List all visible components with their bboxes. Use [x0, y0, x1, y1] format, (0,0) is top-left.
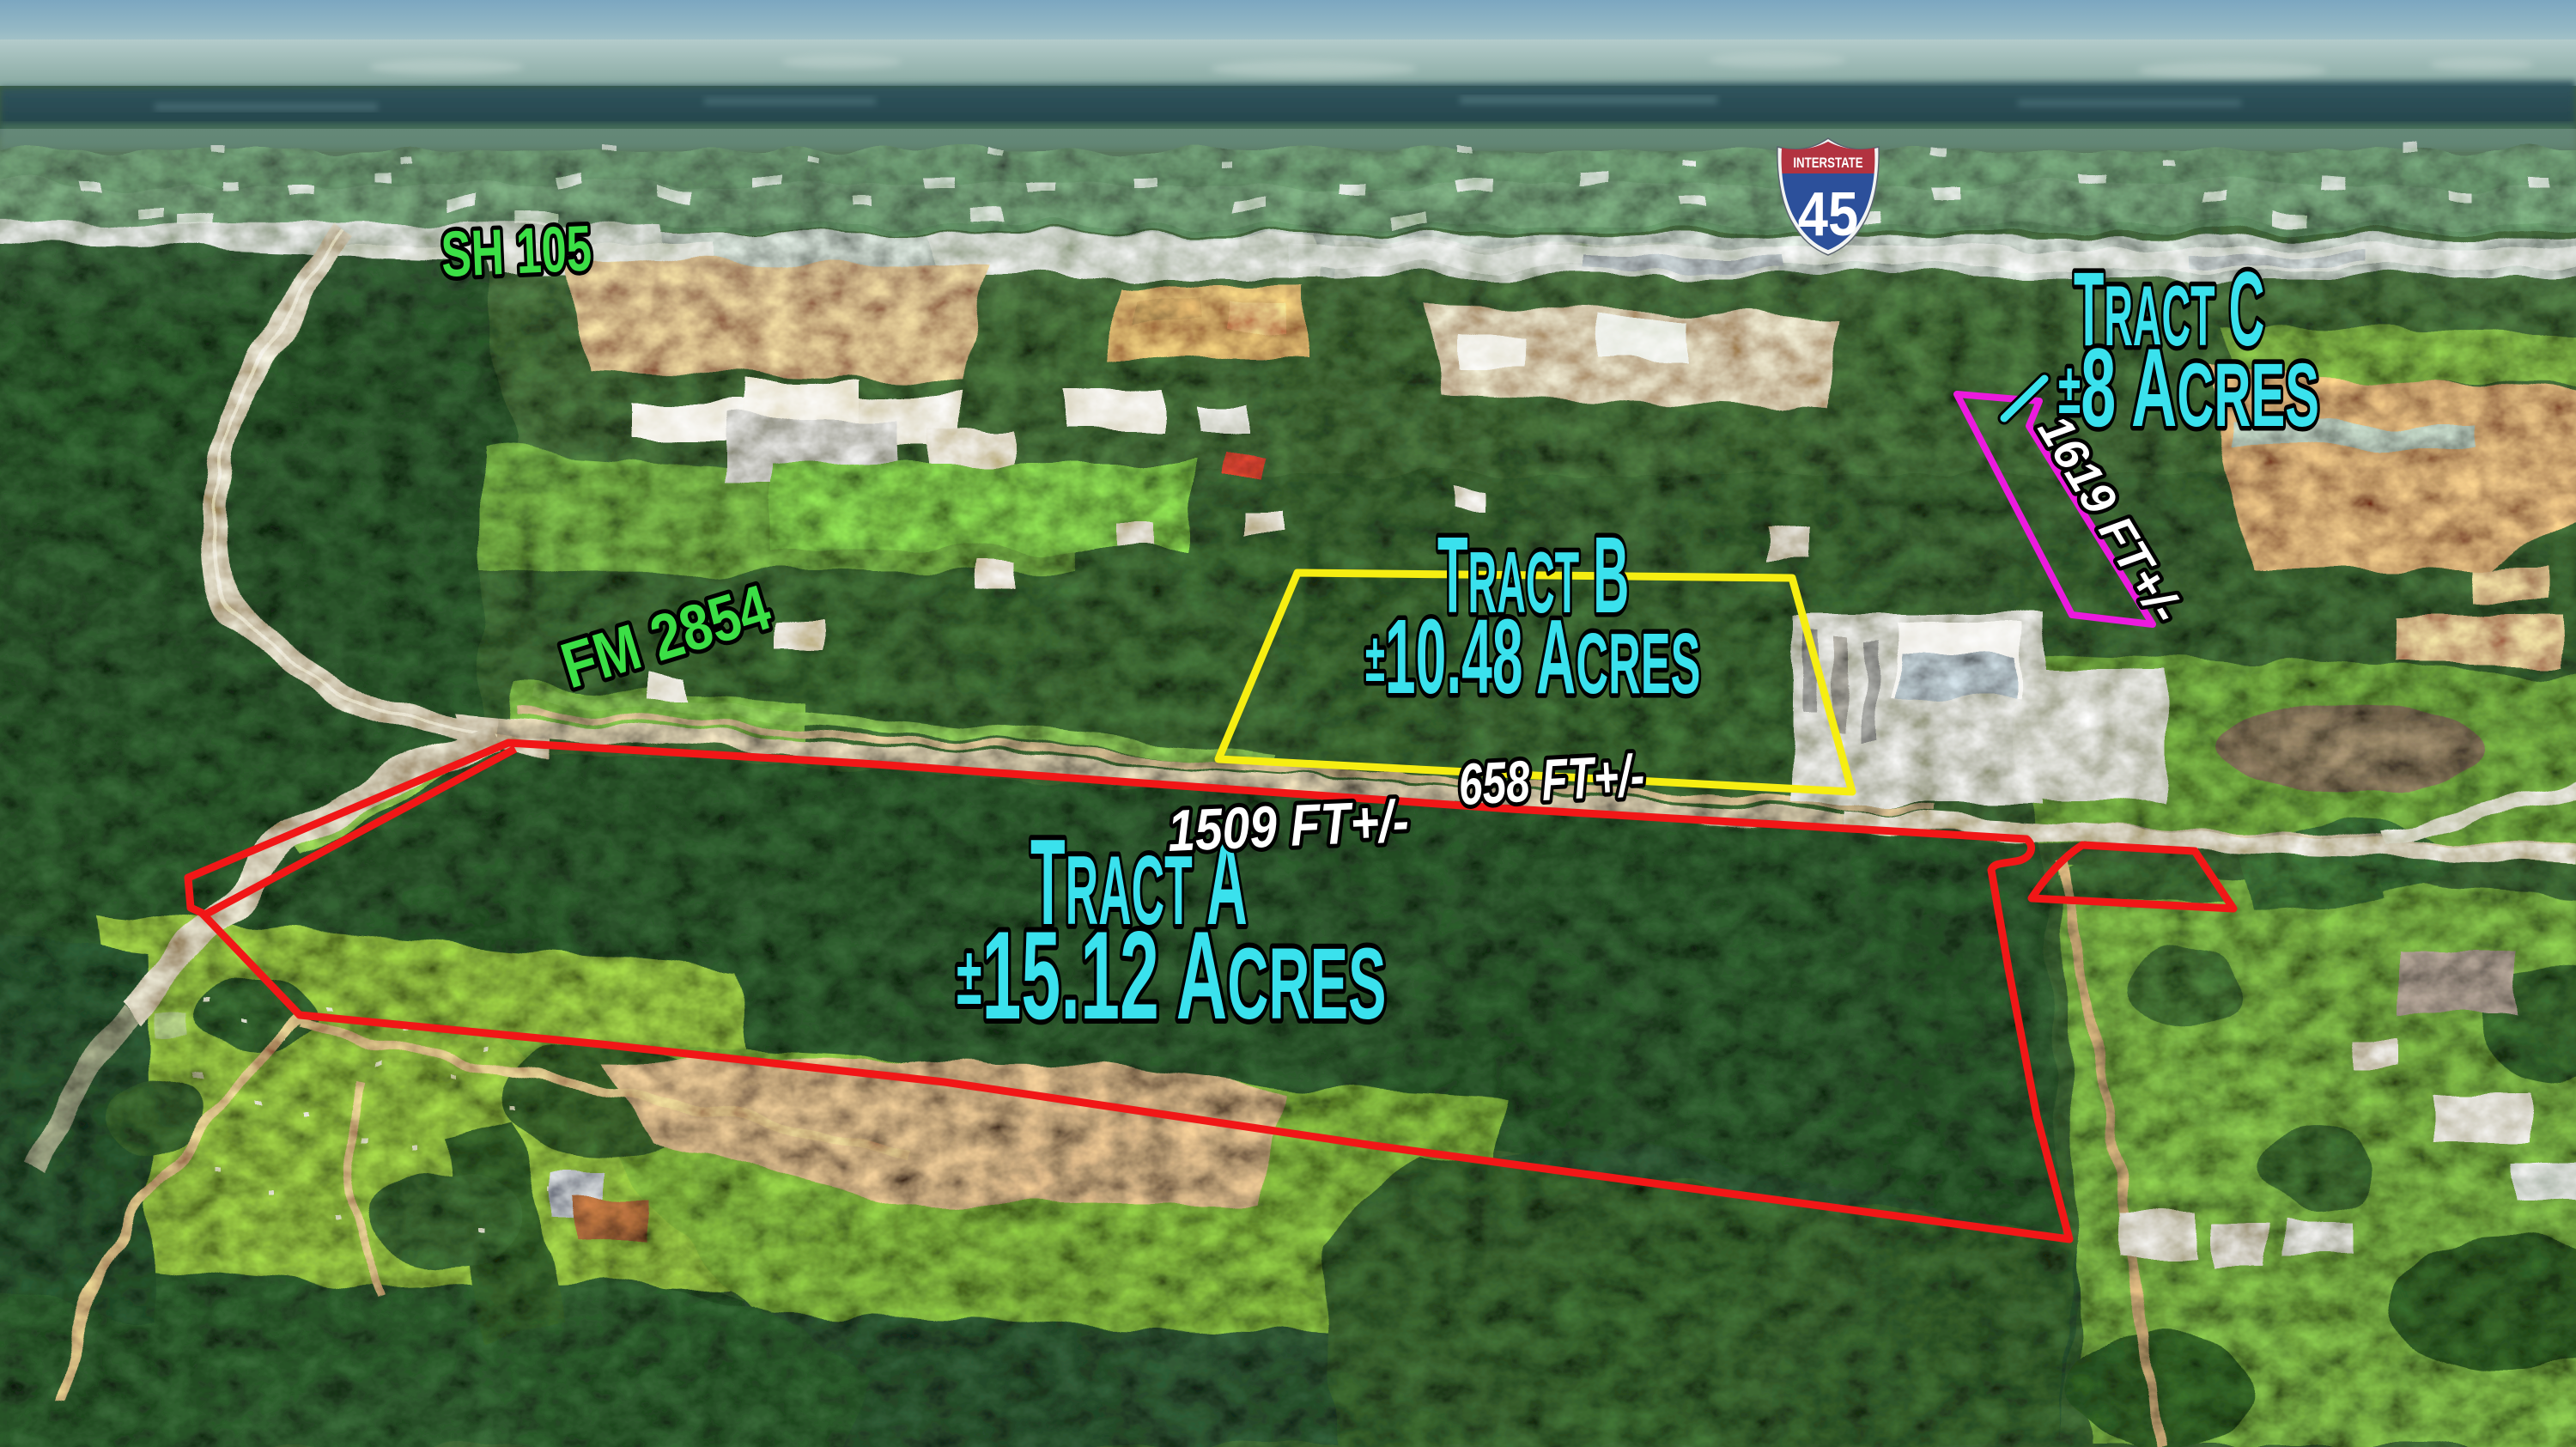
svg-text:±15.12 ACRES: ±15.12 ACRES — [957, 906, 1387, 1046]
svg-text:1509 FT+/-: 1509 FT+/- — [1166, 788, 1410, 864]
svg-text:45: 45 — [1798, 180, 1858, 249]
svg-text:±10.48 ACRES: ±10.48 ACRES — [1365, 597, 1700, 715]
svg-text:SH 105: SH 105 — [440, 211, 593, 290]
svg-text:658 FT+/-: 658 FT+/- — [1457, 742, 1646, 818]
svg-text:INTERSTATE: INTERSTATE — [1793, 155, 1862, 172]
